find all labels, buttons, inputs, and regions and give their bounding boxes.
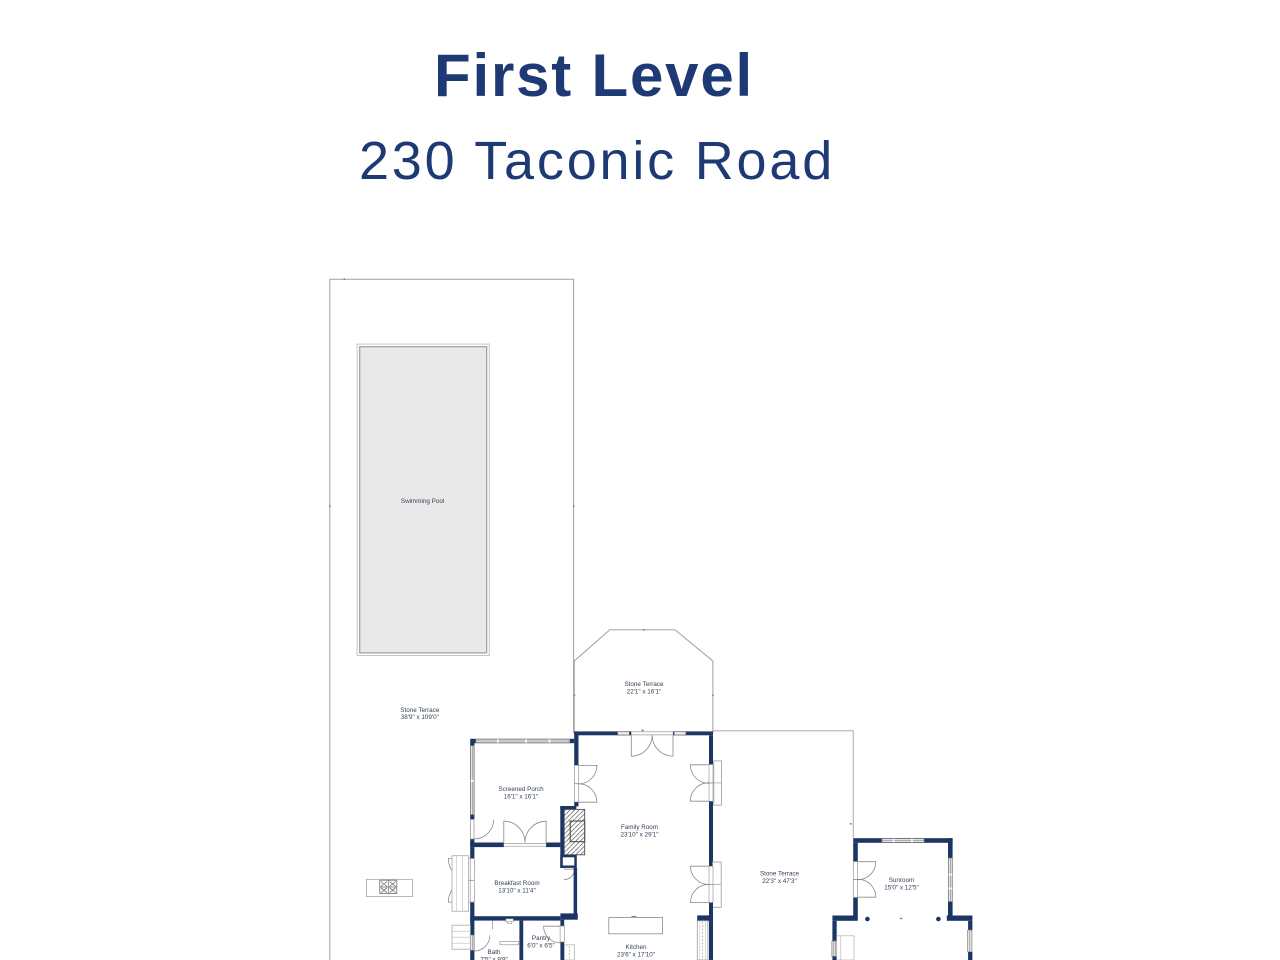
- svg-text:Stone Terrace: Stone Terrace: [400, 707, 440, 714]
- svg-text:Swimming Pool: Swimming Pool: [401, 498, 444, 505]
- svg-text:Kitchen: Kitchen: [625, 944, 647, 951]
- svg-text:Stone Terrace: Stone Terrace: [624, 681, 664, 688]
- svg-text:Breakfast Room: Breakfast Room: [494, 880, 539, 887]
- svg-text:22'1" x 16'1": 22'1" x 16'1": [627, 689, 662, 696]
- svg-text:7'5" x 9'9": 7'5" x 9'9": [480, 957, 508, 960]
- svg-text:Screened Porch: Screened Porch: [498, 786, 544, 793]
- svg-text:Family Room: Family Room: [621, 824, 658, 831]
- svg-text:6'0" x 6'5": 6'0" x 6'5": [527, 943, 555, 950]
- svg-text:23'10" x 29'1": 23'10" x 29'1": [620, 832, 658, 839]
- svg-text:16'1" x 16'1": 16'1" x 16'1": [504, 794, 539, 801]
- svg-text:23'6" x 17'10": 23'6" x 17'10": [617, 952, 655, 959]
- svg-text:Sunroom: Sunroom: [889, 877, 915, 884]
- svg-text:22'3" x 47'3": 22'3" x 47'3": [762, 878, 797, 885]
- svg-text:Pantry: Pantry: [532, 935, 551, 942]
- svg-text:38'9" x 109'0": 38'9" x 109'0": [401, 714, 439, 721]
- svg-text:13'10" x 11'4": 13'10" x 11'4": [498, 888, 536, 895]
- svg-text:15'0" x 12'5": 15'0" x 12'5": [884, 885, 919, 892]
- svg-text:Stone Terrace: Stone Terrace: [760, 871, 800, 878]
- svg-text:Bath: Bath: [488, 949, 501, 956]
